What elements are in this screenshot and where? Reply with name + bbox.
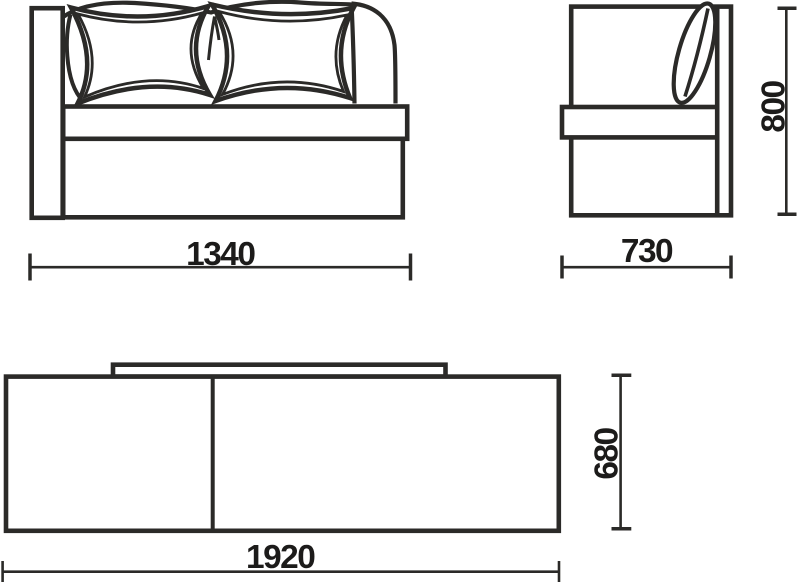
svg-text:730: 730	[621, 233, 673, 270]
svg-text:680: 680	[589, 427, 626, 479]
svg-text:1920: 1920	[246, 539, 315, 576]
svg-text:800: 800	[756, 80, 793, 132]
svg-text:1340: 1340	[186, 236, 255, 273]
